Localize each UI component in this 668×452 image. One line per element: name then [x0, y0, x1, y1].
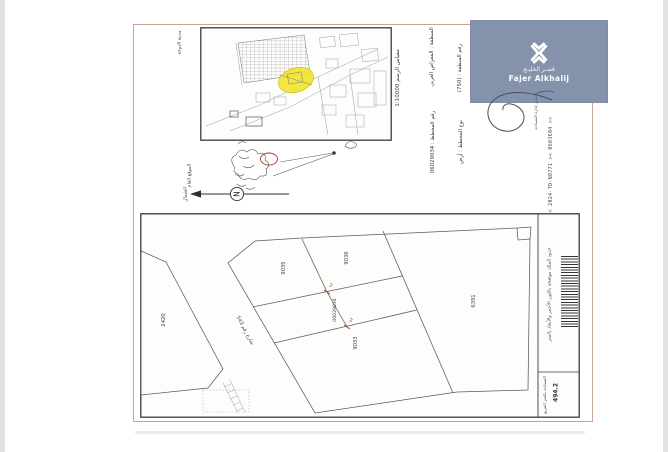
- scan-shadow: [135, 431, 585, 434]
- brand-english: Fajer Alkhalij: [509, 75, 570, 83]
- zone-field: المنطقة : المعراض الغربي: [428, 28, 438, 86]
- north-compass: N: [190, 187, 289, 200]
- red-mark-label: م5: [328, 282, 333, 287]
- sketch-red-circle: [261, 153, 278, 165]
- logo-starburst-icon: [524, 41, 554, 65]
- plan-number-field: رقم المخطط : 06029034: [429, 113, 439, 171]
- barcode: [561, 256, 578, 328]
- municipality-label: مدينة الدوحة: [177, 22, 186, 64]
- plan-type-field: نوع المخطط : أرض: [457, 114, 467, 170]
- area-label: المساحة بالمتر المربع: [541, 373, 549, 417]
- plot-label: 9035: [281, 261, 287, 274]
- sketch-point: [332, 151, 336, 155]
- key-map: [200, 27, 392, 141]
- zone-number-field: رقم المنطقة : (750): [456, 37, 466, 99]
- north-letter: N: [233, 191, 242, 197]
- boundary-note: حدود الملك موضحة باللون الأحمر والأبعاد …: [547, 245, 556, 345]
- plot-label: 9036: [344, 251, 350, 264]
- plot-label: 2420: [161, 313, 167, 326]
- site-plan: م5 م5 2420 9035 9036 9033 6391 06029034 …: [140, 213, 580, 418]
- plot-label: 6391: [471, 294, 477, 307]
- area-value: 494.2: [552, 378, 561, 408]
- signature-caption: مدير إدارة المساحة: [532, 95, 540, 131]
- red-mark-label: م5: [348, 317, 353, 322]
- site-plan-border: [141, 214, 579, 417]
- north-label: الشمال: [183, 184, 192, 206]
- sketch-outline: [232, 142, 357, 190]
- plot-label: 06029034: [332, 298, 338, 321]
- scan-edge-left: [0, 0, 5, 452]
- location-sketch: N: [185, 138, 370, 210]
- plot-label: 9033: [353, 336, 359, 349]
- scan-edge-right: [663, 0, 668, 452]
- brand-arabic: قصـر الخليـج: [523, 67, 555, 73]
- scale-label: مقياس الرسم 1:10000: [394, 38, 404, 118]
- scanned-document-page: مدينة الدوحة مقياس الرسم 1:10000 المنطقة…: [0, 0, 668, 452]
